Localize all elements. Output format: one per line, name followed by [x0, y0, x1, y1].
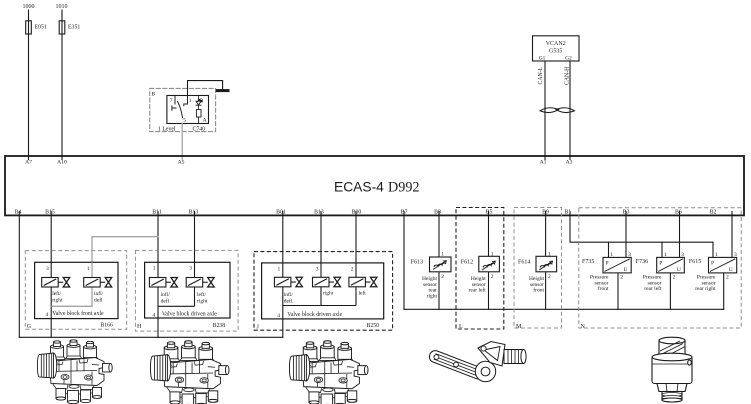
svg-text:A: A: [203, 118, 207, 124]
svg-text:F614: F614: [518, 259, 530, 265]
svg-text:H: H: [137, 324, 142, 330]
svg-text:defl.: defl.: [284, 298, 295, 305]
svg-text:3: 3: [316, 266, 319, 272]
svg-text:1: 1: [715, 252, 718, 258]
svg-text:1: 1: [491, 251, 494, 257]
svg-text:1: 1: [548, 251, 551, 257]
svg-text:right: right: [52, 298, 63, 304]
svg-text:P: P: [606, 260, 609, 266]
svg-text:E051: E051: [35, 25, 47, 31]
svg-text:rear left: rear left: [644, 285, 662, 292]
svg-text:B15: B15: [45, 209, 55, 215]
svg-text:1: 1: [441, 251, 444, 257]
svg-text:C740: C740: [193, 126, 206, 132]
svg-text:infl/: infl/: [284, 291, 294, 298]
svg-text:1: 1: [189, 98, 192, 104]
svg-text:B13: B13: [189, 209, 199, 215]
svg-text:7: 7: [170, 98, 173, 104]
svg-text:B: B: [152, 92, 156, 98]
svg-text:U: U: [624, 267, 628, 273]
svg-text:3: 3: [189, 266, 192, 272]
svg-text:3: 3: [46, 266, 49, 272]
svg-text:2: 2: [673, 275, 676, 281]
svg-text:B13: B13: [314, 209, 324, 215]
svg-text:1010: 1010: [56, 4, 68, 10]
svg-text:5: 5: [183, 118, 186, 124]
svg-text:P: P: [711, 260, 714, 266]
svg-text:front: front: [533, 287, 544, 294]
svg-text:1: 1: [610, 252, 613, 258]
svg-text:A5: A5: [178, 160, 185, 166]
svg-text:A1: A1: [540, 160, 547, 166]
svg-text:2: 2: [726, 275, 729, 281]
svg-text:left/: left/: [197, 291, 206, 298]
svg-text:CAN-H: CAN-H: [565, 66, 571, 85]
svg-text:rear right: rear right: [695, 286, 716, 292]
svg-text:1: 1: [153, 266, 156, 272]
svg-text:E351: E351: [68, 25, 80, 31]
svg-text:G1: G1: [539, 56, 546, 62]
svg-text:right: right: [427, 294, 438, 300]
svg-text:F735: F735: [582, 259, 594, 265]
svg-text:Valve block driven axle: Valve block driven axle: [287, 312, 342, 318]
svg-text:L: L: [459, 324, 463, 330]
svg-text:A10: A10: [57, 160, 67, 166]
svg-text:defl: defl: [94, 297, 103, 304]
svg-text:2: 2: [620, 275, 623, 281]
svg-text:CAN-L: CAN-L: [538, 66, 544, 84]
svg-text:B6: B6: [675, 209, 682, 215]
svg-text:A3: A3: [566, 160, 573, 166]
svg-text:G535: G535: [549, 49, 562, 55]
svg-text:ECAS-4: ECAS-4: [334, 179, 384, 194]
svg-text:M: M: [516, 324, 522, 330]
svg-text:B5: B5: [486, 209, 493, 215]
svg-text:right: right: [197, 299, 208, 305]
svg-text:B11: B11: [152, 209, 162, 215]
svg-text:Valve block front axle: Valve block front axle: [52, 310, 104, 317]
svg-text:D992: D992: [388, 180, 420, 196]
svg-text:B238: B238: [213, 323, 226, 329]
svg-text:2: 2: [548, 274, 551, 280]
svg-text:4: 4: [277, 313, 280, 319]
svg-text:N: N: [581, 324, 586, 330]
svg-text:left: left: [359, 290, 367, 297]
svg-text:1000: 1000: [23, 4, 35, 10]
svg-text:front: front: [598, 285, 609, 292]
svg-text:G2: G2: [565, 56, 572, 62]
svg-text:B1: B1: [564, 209, 571, 215]
svg-text:B01: B01: [276, 209, 286, 215]
svg-text:2: 2: [491, 274, 494, 280]
svg-text:B9: B9: [542, 209, 549, 215]
svg-text:B3: B3: [623, 209, 630, 215]
svg-text:B4: B4: [15, 209, 22, 215]
svg-text:3: 3: [681, 252, 684, 258]
svg-text:G: G: [27, 324, 32, 330]
svg-text:1: 1: [278, 266, 281, 272]
svg-text:B: B: [200, 98, 204, 104]
svg-text:B00: B00: [352, 209, 362, 215]
svg-text:B8: B8: [434, 209, 441, 215]
svg-text:1: 1: [664, 252, 667, 258]
svg-text:4: 4: [153, 312, 156, 318]
svg-text:4: 4: [45, 312, 48, 318]
svg-text:F612: F612: [461, 259, 473, 265]
svg-text:3: 3: [628, 252, 631, 258]
svg-text:infl/: infl/: [161, 291, 171, 298]
svg-text:1: 1: [87, 266, 90, 272]
svg-text:B2: B2: [710, 209, 717, 215]
svg-text:B250: B250: [367, 323, 380, 329]
svg-text:Valve block driven axle: Valve block driven axle: [162, 312, 217, 318]
svg-text:3: 3: [734, 252, 737, 258]
svg-text:F736: F736: [636, 259, 648, 265]
svg-text:right: right: [323, 291, 334, 297]
svg-text:rear left: rear left: [469, 287, 487, 294]
svg-text:B7: B7: [401, 209, 408, 215]
svg-text:U: U: [677, 267, 681, 273]
svg-text:F615: F615: [689, 259, 701, 265]
svg-text:A7: A7: [25, 160, 32, 166]
svg-text:2: 2: [441, 274, 444, 280]
svg-text:VCAN2: VCAN2: [546, 41, 566, 47]
svg-text:P: P: [659, 260, 662, 266]
svg-text:1 Level: 1 Level: [158, 126, 176, 132]
svg-text:infl/: infl/: [94, 290, 104, 297]
svg-text:2: 2: [351, 266, 354, 272]
svg-text:F613: F613: [411, 259, 423, 265]
svg-text:left/: left/: [52, 290, 61, 297]
svg-text:U: U: [729, 267, 733, 273]
svg-text:defl: defl: [161, 298, 170, 305]
svg-text:B166: B166: [100, 322, 113, 328]
